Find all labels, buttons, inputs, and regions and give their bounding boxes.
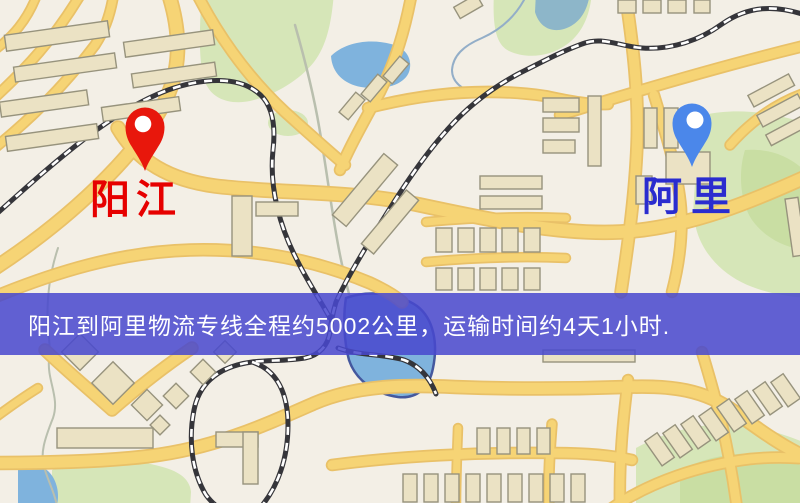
route-banner-text: 阳江到阿里物流专线全程约5002公里，运输时间约4天1小时. — [0, 307, 670, 341]
destination-pin-hole — [687, 112, 704, 129]
origin-pin-hole — [135, 116, 152, 133]
map-canvas[interactable] — [0, 0, 800, 503]
map-screenshot: 阳江 阿里 阳江到阿里物流专线全程约5002公里，运输时间约4天1小时. — [0, 0, 800, 503]
destination-label: 阿里 — [642, 177, 740, 217]
origin-label: 阳江 — [90, 180, 182, 220]
route-banner: 阳江到阿里物流专线全程约5002公里，运输时间约4天1小时. — [0, 293, 800, 355]
